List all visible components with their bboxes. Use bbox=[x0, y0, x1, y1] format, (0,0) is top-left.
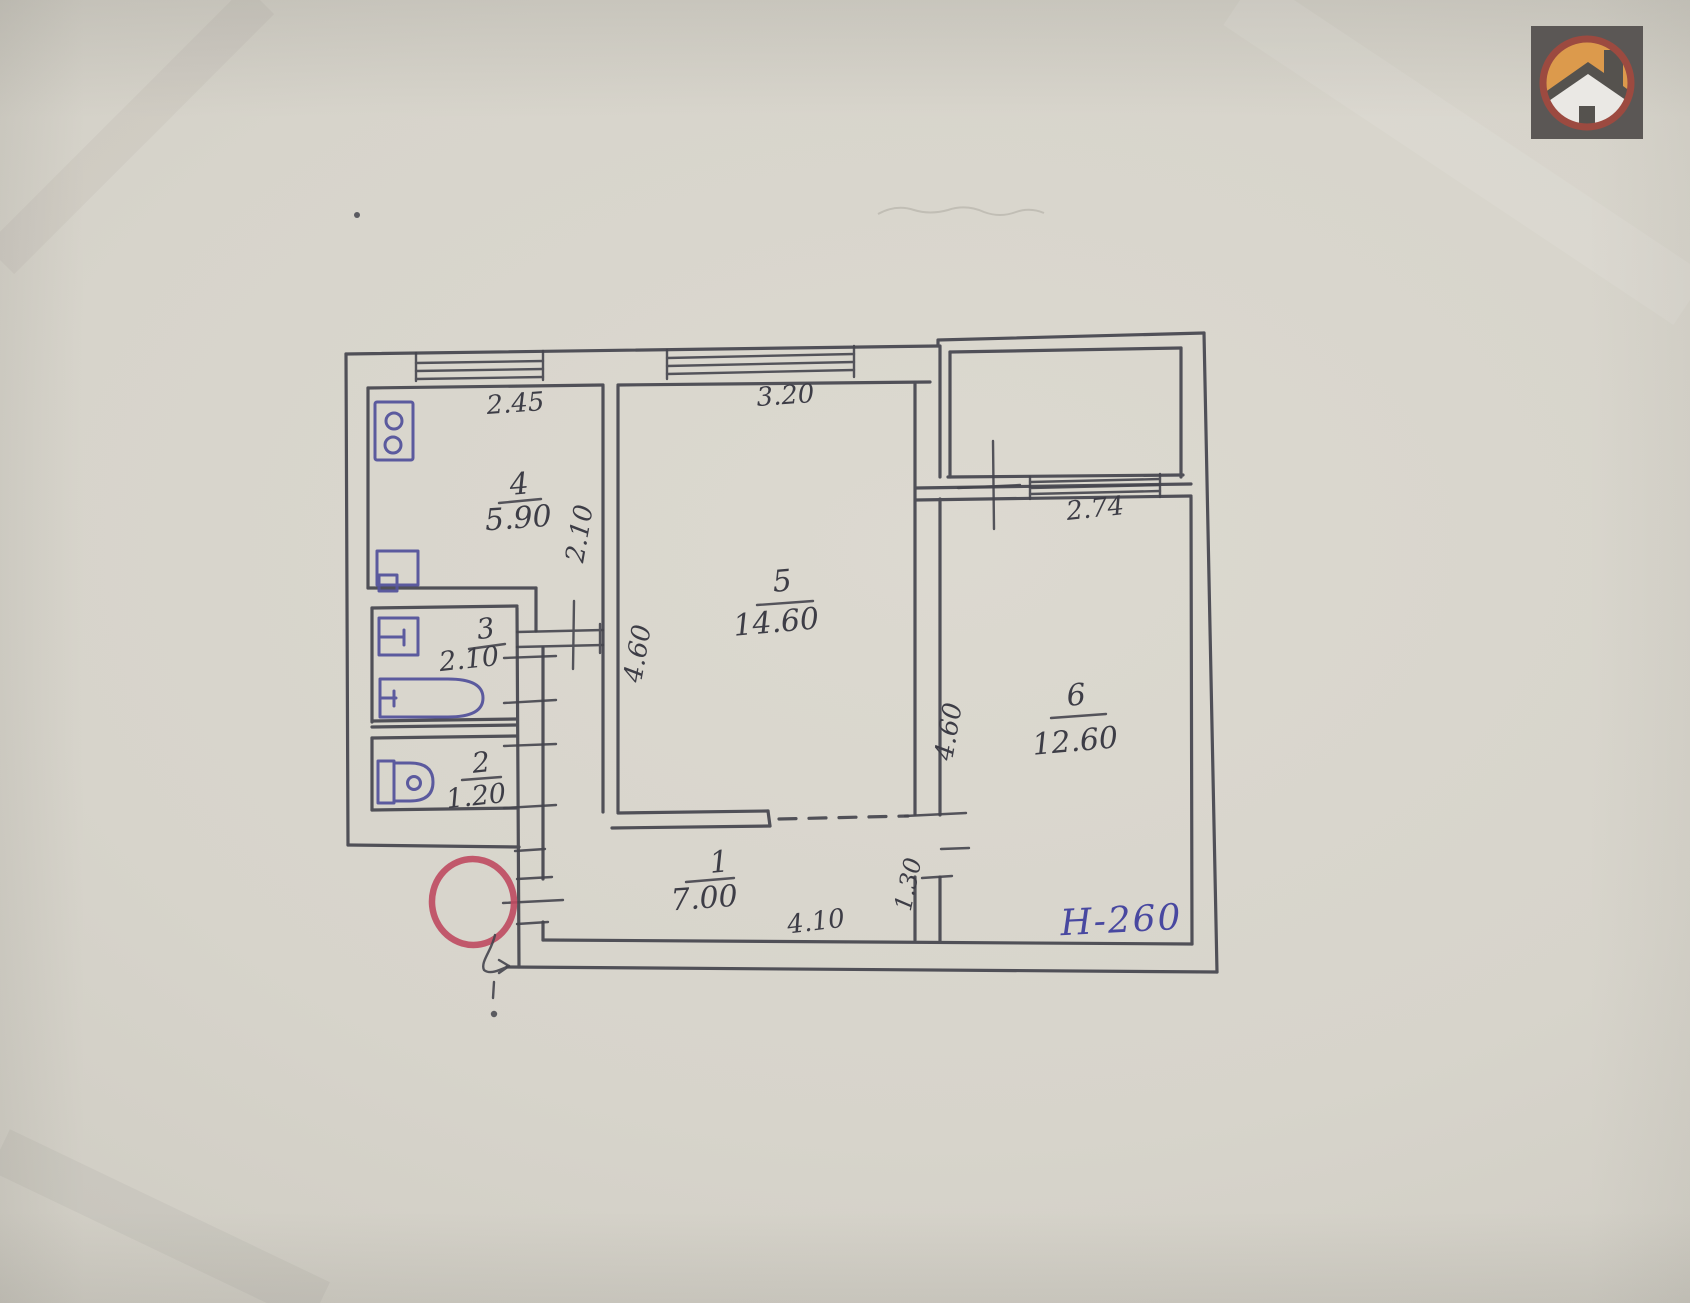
room-2-area: 1.20 bbox=[445, 778, 508, 815]
dim-bedroom-depth: 4.60 bbox=[929, 701, 969, 764]
room-1-number: 1 bbox=[708, 844, 730, 881]
dim-corridor-depth: 2.10 bbox=[560, 503, 600, 566]
dim-bedroom-window: 2.74 bbox=[1064, 491, 1126, 527]
faint-pencil-scribble bbox=[878, 207, 1044, 215]
room-6-number: 6 bbox=[1065, 677, 1087, 714]
fixtures bbox=[375, 402, 483, 803]
dim-living-room-window: 3.20 bbox=[756, 379, 816, 413]
labels: 1 7.00 2 1.20 3 2.10 4 5.90 5 14.60 6 12… bbox=[437, 379, 1184, 944]
kitchen-door bbox=[517, 601, 603, 669]
kitchen-sink-icon bbox=[377, 551, 418, 591]
room-1-area: 7.00 bbox=[670, 879, 739, 919]
dim-hallway-nook: 1.30 bbox=[889, 855, 927, 913]
wc-door bbox=[504, 744, 556, 808]
room-6-area: 12.60 bbox=[1031, 720, 1120, 762]
washbasin-icon bbox=[379, 618, 418, 655]
bathtub-icon bbox=[380, 679, 483, 717]
dim-living-room-depth: 4.60 bbox=[618, 623, 658, 686]
house-logo bbox=[1531, 26, 1643, 140]
room-6-fraction-line bbox=[1051, 714, 1106, 718]
toilet-icon bbox=[378, 761, 433, 803]
dashed-opening bbox=[779, 816, 908, 819]
room-2-number: 2 bbox=[469, 745, 491, 780]
room-3-area: 2.10 bbox=[437, 641, 501, 678]
floor-plan-drawing: 1 7.00 2 1.20 3 2.10 4 5.90 5 14.60 6 12… bbox=[0, 0, 1690, 1303]
stray-ink-dot bbox=[354, 212, 360, 218]
kitchen-window bbox=[416, 351, 543, 381]
room-5-area: 14.60 bbox=[732, 601, 821, 643]
dim-hallway-length: 4.10 bbox=[784, 904, 846, 941]
paper-creases bbox=[0, 0, 1690, 1303]
stove-icon bbox=[375, 402, 413, 460]
entrance-marker bbox=[428, 855, 519, 1017]
room-4-number: 4 bbox=[507, 466, 530, 503]
entrance-arrow-dot bbox=[491, 1011, 497, 1017]
window-cross-mark bbox=[958, 441, 1020, 529]
room-4-area: 5.90 bbox=[484, 499, 553, 539]
dim-kitchen-window: 2.45 bbox=[485, 387, 546, 421]
room-5-number: 5 bbox=[771, 563, 793, 600]
living-room-window bbox=[667, 346, 854, 379]
scanned-paper-background: 1 7.00 2 1.20 3 2.10 4 5.90 5 14.60 6 12… bbox=[0, 0, 1690, 1303]
bathroom-door bbox=[504, 656, 556, 703]
ceiling-height-note: H-260 bbox=[1058, 897, 1183, 944]
